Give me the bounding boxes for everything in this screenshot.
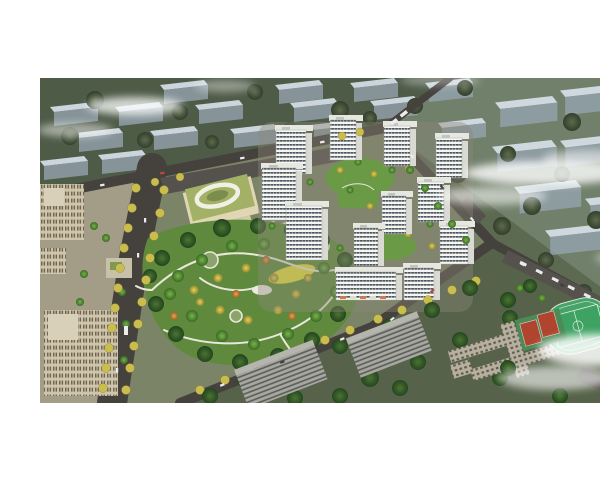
residential-tower-cluster bbox=[258, 115, 475, 312]
residential-tower bbox=[285, 201, 329, 260]
park-plaza-circle bbox=[230, 310, 242, 322]
residential-tower bbox=[403, 263, 441, 300]
image-caption: Bird's-eye rendering: a cluster of about… bbox=[40, 16, 41, 17]
residential-slab-retail bbox=[335, 267, 403, 300]
rendering-content-band: Aerial architectural rendering of a resi… bbox=[40, 78, 600, 403]
rendering-scene: Aerial architectural rendering of a resi… bbox=[40, 78, 600, 403]
truck bbox=[124, 326, 128, 335]
aerial-rendering-image: Bird's-eye rendering: a cluster of about… bbox=[40, 16, 600, 466]
office-building bbox=[40, 248, 66, 274]
